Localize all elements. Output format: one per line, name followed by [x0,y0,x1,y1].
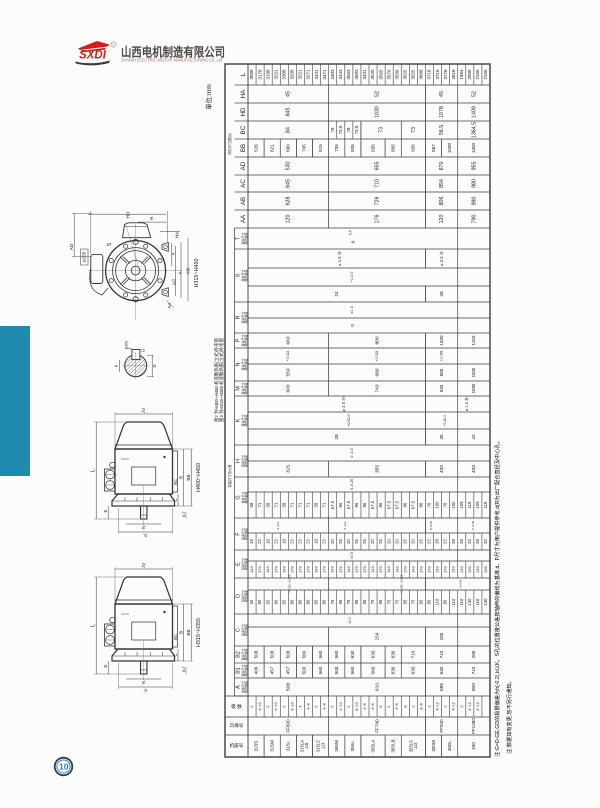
svg-text:SHANXI ELECTRIC MOTOR MANUF: SHANXI ELECTRIC MOTOR MANUFACTURING Co.,… [121,58,223,63]
svg-text:95: 95 [338,599,343,604]
svg-text:FF940: FF940 [439,719,444,733]
svg-text:22: 22 [298,539,303,544]
svg-text:3431: 3431 [314,69,319,80]
svg-text:600: 600 [286,384,292,392]
svg-text:AD: AD [240,161,247,170]
svg-text:170: 170 [322,565,327,572]
svg-text:680: 680 [374,368,380,376]
svg-text:4~6: 4~6 [371,703,375,709]
svg-text:K: K [171,252,176,255]
svg-text:20: 20 [410,539,415,544]
svg-text:560: 560 [318,650,323,658]
svg-text:B: B [179,476,184,479]
svg-text:1300: 1300 [471,142,476,153]
svg-text:2008: 2008 [467,69,472,80]
svg-text:67.5: 67.5 [394,500,399,509]
svg-text:3443: 3443 [338,69,343,80]
svg-text:3221: 3221 [273,69,278,80]
svg-text:85: 85 [443,599,448,604]
svg-text:35: 35 [439,434,445,440]
svg-text:25: 25 [362,539,367,544]
svg-text:+0.035 +0.013: +0.035 +0.013 [400,575,404,593]
svg-text:28: 28 [439,291,445,297]
svg-text:4~12: 4~12 [476,702,480,711]
svg-text:58: 58 [281,502,286,507]
svg-text:4~12: 4~12 [468,702,472,711]
svg-text:HD: HD [240,107,247,116]
svg-text:图3 为H315~H355 机座散热筋(立式)外形图: 图3 为H315~H355 机座散热筋(立式)外形图 [218,337,225,422]
svg-text:AB: AB [186,268,191,274]
svg-text:AA: AA [167,303,172,309]
svg-text:400: 400 [439,465,445,473]
svg-text:BC: BC [173,479,178,485]
svg-text:E: E [103,664,108,667]
svg-text:28: 28 [435,539,440,544]
svg-text:3271: 3271 [306,69,311,80]
svg-text:极限偏差: 极限偏差 [243,311,248,323]
svg-text:75: 75 [410,599,415,604]
svg-text:0 -0.2: 0 -0.2 [343,521,347,529]
svg-text:854: 854 [439,179,445,188]
svg-text:单位:mm: 单位:mm [204,84,213,110]
svg-text:22: 22 [273,539,278,544]
svg-text:120: 120 [286,215,292,224]
svg-text:110: 110 [459,598,464,605]
svg-text:FF740: FF740 [374,719,379,733]
svg-text:JV: JV [141,407,147,413]
svg-text:210: 210 [459,565,464,572]
svg-text:935: 935 [411,144,416,152]
svg-text:52: 52 [471,91,477,97]
svg-text:极限偏差: 极限偏差 [243,269,248,281]
svg-text:极限偏差: 极限偏差 [243,681,248,693]
svg-text:18: 18 [281,539,286,544]
svg-text:119: 119 [483,501,488,508]
svg-text:355L: 355L [350,740,355,751]
svg-text:75: 75 [330,599,335,604]
svg-text:76: 76 [427,502,432,507]
svg-text:73: 73 [379,127,385,133]
svg-text:+0.52 0: +0.52 0 [347,414,351,426]
svg-text:170: 170 [289,565,294,572]
svg-text:80: 80 [306,599,311,604]
svg-text:极限偏差: 极限偏差 [243,528,248,540]
svg-text:140: 140 [346,565,351,572]
svg-text:22: 22 [427,539,432,544]
svg-text:955: 955 [471,162,477,171]
svg-text:H315~H450: H315~H450 [194,259,200,288]
svg-text:75: 75 [370,599,375,604]
svg-text:84: 84 [286,127,292,133]
svg-text:2: 2 [266,705,270,707]
svg-text:+0.028: +0.028 [439,351,443,362]
svg-text:24: 24 [334,291,340,297]
svg-text:4~12: 4~12 [436,702,440,711]
svg-text:508: 508 [286,683,292,691]
svg-text:58: 58 [265,502,270,507]
svg-text:42: 42 [471,434,477,440]
svg-text:140: 140 [281,565,286,572]
svg-text:58: 58 [249,502,254,507]
svg-text:A: A [178,271,183,275]
svg-text:4~6: 4~6 [419,703,423,709]
svg-text:400M: 400M [431,740,436,752]
svg-text:E: E [103,509,108,512]
svg-text:140: 140 [249,565,254,572]
svg-text:L: L [90,469,96,472]
svg-text:500: 500 [334,666,339,674]
svg-text:3625: 3625 [411,69,416,80]
svg-text:1080: 1080 [471,383,476,393]
svg-text:140: 140 [370,565,375,572]
svg-text:560: 560 [350,666,355,674]
svg-text:F: F [114,364,119,367]
svg-text:18: 18 [265,539,270,544]
svg-text:凸缘号: 凸缘号 [230,722,244,729]
svg-text:400L: 400L [447,740,452,751]
svg-text:AA: AA [240,214,247,223]
svg-text:极限偏差: 极限偏差 [243,648,248,660]
svg-text:2: 2 [282,705,286,707]
svg-text:0 -0.2: 0 -0.2 [276,521,280,529]
svg-text:3403: 3403 [330,69,335,80]
svg-text:86: 86 [338,502,343,507]
svg-text:2165: 2165 [483,69,488,80]
svg-text:726: 726 [374,197,380,206]
svg-text:3818: 3818 [451,69,456,80]
svg-text:645: 645 [286,179,292,188]
svg-text:,LD: ,LD [320,743,325,750]
svg-text:140: 140 [265,565,270,572]
svg-text:,LD: ,LD [413,743,418,750]
svg-text:140: 140 [314,565,319,572]
svg-text:4: 4 [298,705,302,707]
svg-text:3431: 3431 [362,69,367,80]
svg-text:65: 65 [265,599,270,604]
svg-text:86: 86 [362,502,367,507]
svg-text:4~10: 4~10 [290,702,294,711]
svg-text:65: 65 [314,599,319,604]
svg-text:630: 630 [370,650,375,658]
svg-text:735: 735 [334,144,339,152]
svg-text:560: 560 [334,650,339,658]
svg-text:10: 10 [59,761,69,771]
svg-text:710: 710 [471,666,476,674]
svg-text:355M: 355M [334,740,339,752]
svg-text:3198: 3198 [265,69,270,80]
svg-text:560: 560 [302,650,307,658]
svg-text:±1.0: ±1.0 [348,617,352,624]
svg-text:⌀ 2.0 Ⓜ: ⌀ 2.0 Ⓜ [340,396,347,412]
svg-text:极限偏差: 极限偏差 [243,358,248,370]
svg-text:⌀ 1.6 Ⓜ: ⌀ 1.6 Ⓜ [336,250,343,266]
svg-text:3471: 3471 [322,69,327,80]
svg-text:75: 75 [346,599,351,604]
svg-text:610: 610 [374,683,380,691]
svg-text:1364.5: 1364.5 [471,122,477,138]
svg-text:4~10: 4~10 [339,702,343,711]
svg-text:极 数: 极 数 [231,703,242,710]
svg-text:170: 170 [402,565,407,572]
svg-text:25: 25 [419,539,424,544]
svg-text:71: 71 [257,502,262,507]
svg-text:⌀ 2.5 Ⓜ: ⌀ 2.5 Ⓜ [463,397,469,411]
svg-text:660: 660 [286,336,292,344]
svg-text:80: 80 [257,599,262,604]
svg-text:22: 22 [306,539,311,544]
svg-text:119: 119 [467,501,472,508]
svg-text:2: 2 [347,705,351,707]
svg-text:67.5: 67.5 [386,500,391,509]
svg-text:95: 95 [354,599,359,604]
svg-text:HA: HA [175,231,180,238]
svg-text:170: 170 [443,565,448,572]
svg-text:110: 110 [451,598,456,605]
svg-text:355LB: 355LB [390,739,395,752]
svg-text:极限偏差: 极限偏差 [243,455,248,467]
svg-text:835: 835 [350,144,355,152]
svg-text:815: 815 [318,144,323,152]
svg-text:3576: 3576 [386,69,391,80]
svg-text:406: 406 [253,666,258,674]
svg-text:867: 867 [431,144,436,152]
svg-text:2: 2 [331,705,335,707]
svg-text:1409: 1409 [471,106,477,118]
svg-text:67.5: 67.5 [410,500,415,509]
svg-text:8-T: 8-T [182,665,186,671]
svg-text:835: 835 [370,144,375,152]
svg-text:22: 22 [322,539,327,544]
svg-text:1964: 1964 [459,69,464,80]
svg-text:S: S [107,242,113,246]
svg-text:315M: 315M [269,740,274,752]
svg-text:C: C [173,498,178,501]
svg-text:140: 140 [394,565,399,572]
svg-text:315S: 315S [253,741,258,752]
svg-text:73.5: 73.5 [338,125,343,134]
svg-text:FF600: FF600 [286,719,291,733]
svg-text:450: 450 [471,742,476,750]
svg-text:745: 745 [302,144,307,152]
svg-text:3338: 3338 [290,69,295,80]
svg-text:800: 800 [471,683,477,691]
svg-text:740: 740 [374,384,380,392]
svg-text:109: 109 [459,501,464,509]
svg-text:170: 170 [418,565,423,572]
svg-text:22: 22 [289,539,294,544]
svg-text:71: 71 [289,502,294,507]
svg-text:2: 2 [387,705,391,707]
svg-text:极限偏差: 极限偏差 [243,558,248,570]
svg-text:710: 710 [439,650,444,658]
svg-text:76: 76 [443,502,448,507]
svg-text:450: 450 [471,465,477,473]
svg-text:710: 710 [411,650,416,658]
svg-text:78: 78 [330,127,335,132]
svg-text:20: 20 [330,539,335,544]
svg-text:95: 95 [378,599,383,604]
svg-text:1150: 1150 [471,335,476,345]
svg-text:6~10: 6~10 [355,702,359,711]
svg-text:C: C [173,653,178,656]
svg-text:极限偏差: 极限偏差 [243,232,248,244]
svg-text:355LA: 355LA [370,738,375,752]
svg-text:628: 628 [286,197,292,206]
svg-text:280: 280 [439,632,444,640]
svg-text:800: 800 [374,336,380,344]
svg-text:526: 526 [253,144,258,152]
svg-text:73: 73 [411,127,417,133]
svg-text:25: 25 [378,539,383,544]
svg-text:71: 71 [273,502,278,507]
svg-text:685: 685 [439,683,445,691]
svg-text:8: 8 [379,705,383,707]
svg-text:2: 2 [460,705,464,707]
svg-text:HD: HD [125,211,131,218]
svg-text:BB: BB [186,629,191,635]
svg-text:670: 670 [439,162,445,171]
svg-text:A/2: A/2 [172,278,177,285]
svg-text:25: 25 [354,539,359,544]
svg-text:4~8: 4~8 [363,703,367,709]
svg-text:80: 80 [322,599,327,604]
svg-text:110: 110 [435,598,440,605]
svg-text:3716: 3716 [435,69,440,80]
svg-text:AD: AD [69,243,75,250]
svg-text:806: 806 [439,197,445,206]
svg-text:315: 315 [286,465,292,473]
svg-text:100: 100 [451,501,456,509]
svg-text:1090: 1090 [447,142,452,153]
svg-text:790: 790 [471,215,477,224]
svg-text:75: 75 [394,599,399,604]
svg-text:560: 560 [318,666,323,674]
svg-text:500: 500 [302,666,307,674]
svg-text:140: 140 [410,565,415,572]
svg-text:外形尺寸(图示): 外形尺寸(图示) [227,133,232,155]
svg-text:71: 71 [298,502,303,507]
svg-text:d: d [143,689,148,692]
svg-text:SXDI: SXDI [79,50,107,62]
svg-text:极限偏差: 极限偏差 [243,491,248,503]
svg-text:N: N [141,526,146,529]
svg-text:3716: 3716 [427,69,432,80]
svg-text:极限偏差: 极限偏差 [243,624,248,636]
svg-text:d: d [143,534,148,537]
svg-text:极限偏差: 极限偏差 [243,382,248,394]
svg-text:0 -1.0: 0 -1.0 [350,448,354,457]
svg-text:4~8: 4~8 [307,703,311,709]
svg-text:45: 45 [439,91,445,97]
svg-text:32: 32 [483,539,488,544]
svg-text:20: 20 [386,539,391,544]
svg-text:极限偏差: 极限偏差 [243,590,248,602]
svg-text:32: 32 [467,539,472,544]
svg-text:20: 20 [346,539,351,544]
svg-text:1030: 1030 [374,106,380,118]
svg-text:86: 86 [419,502,424,507]
svg-text:22: 22 [257,539,262,544]
svg-text:+0.025: +0.025 [375,351,379,362]
svg-text:86: 86 [402,502,407,507]
svg-text:28: 28 [334,434,340,440]
svg-text:4~10: 4~10 [274,702,278,711]
svg-text:注:G=D-GE,GD的极限偏差为h(-0.2),b以K、S: 注:G=D-GE,GD的极限偏差为h(-0.2),b以K、S孔的位置度公差按轴伸… [493,438,501,757]
svg-text:457: 457 [269,666,274,674]
svg-text:28: 28 [475,539,480,544]
svg-text:73.5: 73.5 [354,125,359,134]
svg-text:安装尺寸及公差: 安装尺寸及公差 [227,464,232,488]
svg-text:140: 140 [386,565,391,572]
svg-text:80: 80 [298,599,303,604]
svg-text:170: 170 [378,565,383,572]
svg-text:67.5: 67.5 [370,500,375,509]
svg-text:80: 80 [273,599,278,604]
svg-text:28: 28 [451,539,456,544]
svg-text:170: 170 [362,565,367,572]
svg-text:457: 457 [286,666,291,674]
svg-text:3563: 3563 [346,69,351,80]
svg-text:170: 170 [297,565,302,572]
svg-text:250: 250 [483,565,488,572]
svg-text:58: 58 [314,502,319,507]
svg-text:355: 355 [374,465,380,473]
svg-text:530: 530 [286,162,292,171]
svg-text:0: 0 [350,324,355,327]
svg-text:170: 170 [427,565,432,572]
svg-text:,LB: ,LB [304,743,309,749]
svg-text:±0.5: ±0.5 [350,552,354,559]
svg-text:+0.42 0: +0.42 0 [443,415,447,427]
svg-text:52: 52 [374,91,380,97]
svg-text:56.5: 56.5 [439,125,445,135]
svg-text:3603: 3603 [354,69,359,80]
svg-text:20: 20 [370,539,375,544]
svg-text:630: 630 [439,666,444,674]
svg-text:-0.5: -0.5 [348,230,352,236]
svg-text:78: 78 [346,127,351,132]
svg-text:170: 170 [257,565,262,572]
svg-text:71: 71 [322,502,327,507]
svg-text:86: 86 [378,502,383,507]
svg-text:28: 28 [459,539,464,544]
svg-text:250: 250 [467,565,472,572]
svg-text:极限偏差: 极限偏差 [243,414,248,426]
svg-text:508: 508 [253,650,258,658]
svg-text:3565: 3565 [378,69,383,80]
svg-text:⌀255: ⌀255 [82,251,87,262]
svg-text:80: 80 [289,599,294,604]
svg-text:630: 630 [390,666,395,674]
svg-text:L: L [240,72,247,76]
svg-text:2: 2 [428,705,432,707]
svg-text:R: R [112,43,115,47]
svg-text:621: 621 [269,144,274,152]
svg-text:6: 6 [350,240,356,243]
svg-text:1000: 1000 [439,335,444,346]
svg-text:100: 100 [435,501,440,509]
svg-text:0 -0.25: 0 -0.25 [471,521,475,531]
svg-text:HA: HA [240,89,247,98]
svg-text:176: 176 [374,215,380,224]
svg-text:710: 710 [374,179,380,188]
svg-text:0 -0.20: 0 -0.20 [350,479,354,490]
svg-text:95: 95 [362,599,367,604]
svg-text:8: 8 [403,705,407,707]
svg-text:845: 845 [286,108,292,117]
svg-text:120: 120 [439,215,445,224]
svg-text:508: 508 [286,650,291,658]
